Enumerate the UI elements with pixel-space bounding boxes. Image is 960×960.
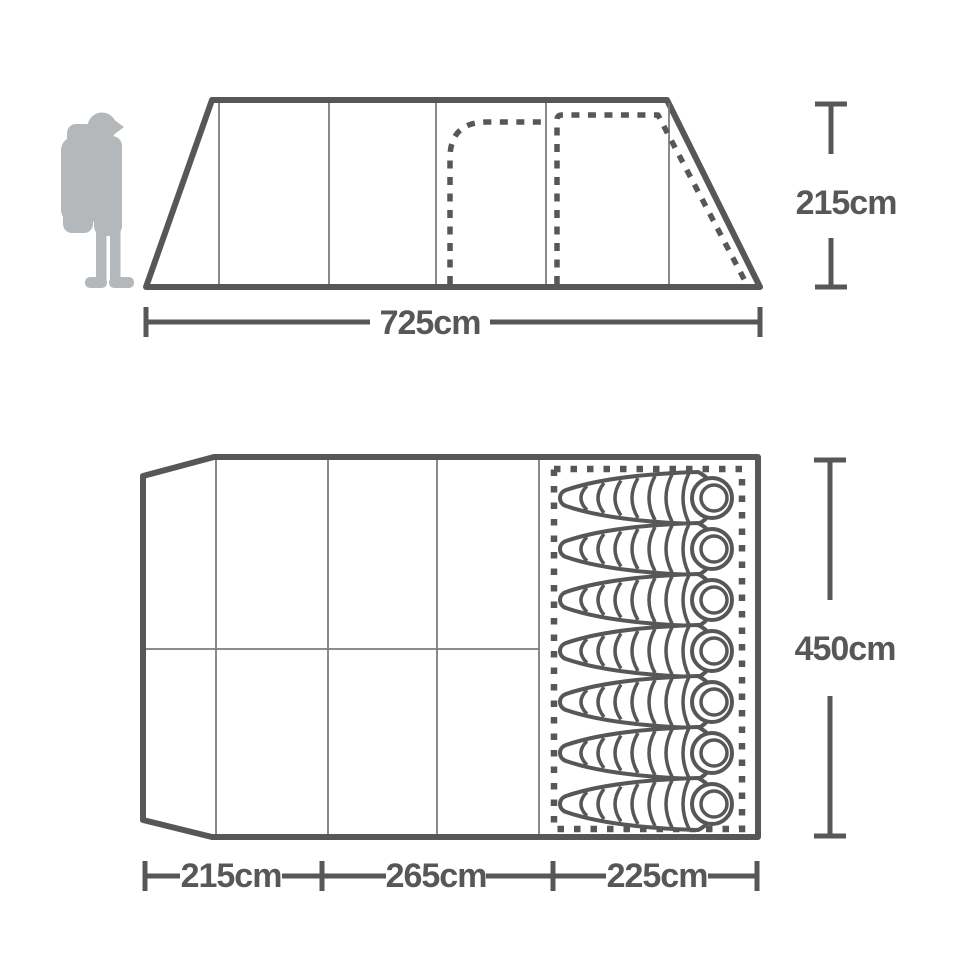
depth-dimension-label: 450cm: [780, 631, 910, 667]
diagram-svg: [0, 0, 960, 960]
section-dimension-label-3: 225cm: [592, 858, 722, 894]
width-dimension-label: 725cm: [365, 305, 495, 341]
section-dimension-label-2: 265cm: [371, 858, 501, 894]
person-silhouette-icon: [61, 113, 134, 289]
tent-side-view: [146, 100, 760, 287]
height-dimension-label: 215cm: [781, 185, 911, 221]
tent-dimensions-diagram: 215cm 725cm 450cm 215cm 265cm 225cm: [0, 0, 960, 960]
section-dimension-label-1: 215cm: [166, 858, 296, 894]
tent-floor-plan: [143, 457, 758, 837]
